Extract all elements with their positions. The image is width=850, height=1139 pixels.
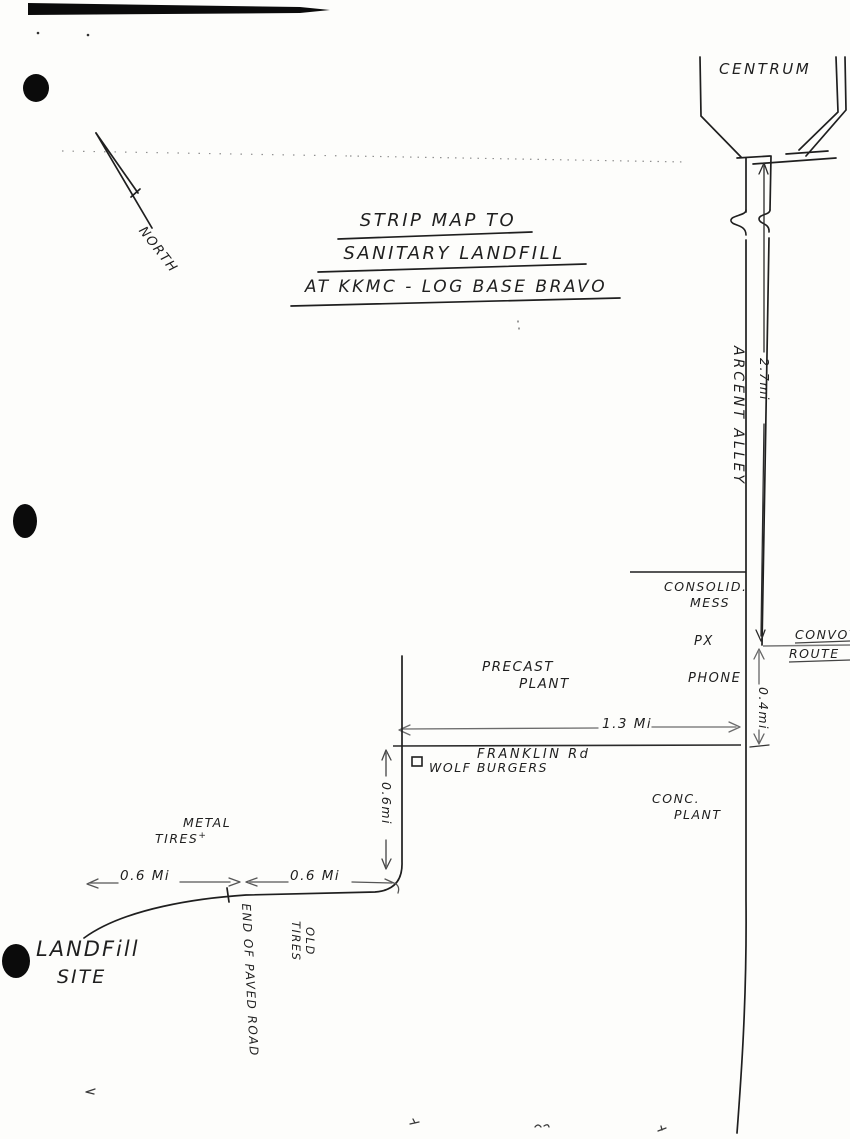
precast-plant-label: PRECAST PLANT: [482, 659, 570, 693]
arcent-alley-road: [737, 156, 771, 1133]
map-title-line1: STRIP MAP TO: [340, 210, 536, 233]
metal-tires-line2: TIRES+: [155, 831, 231, 847]
scan-band-artifact: [28, 3, 330, 36]
convoy-route-label-line1: CONVOY: [795, 627, 850, 643]
hole-punch-marks: [2, 74, 49, 978]
cross-mark: +: [198, 831, 207, 841]
px-label: PX: [694, 634, 714, 650]
landfill-site-label-line2: SITE: [57, 966, 106, 990]
scanned-strip-map-page: STRIP MAP TO SANITARY LANDFILL AT KKMC -…: [0, 0, 850, 1139]
connector-distance-label: 0.6mi: [378, 782, 394, 825]
consolid-mess-line1: CONSOLID.: [664, 579, 747, 595]
conc-plant-line2: PLANT: [674, 807, 722, 823]
map-title-line2: SANITARY LANDFILL: [324, 243, 584, 266]
landfill-site-label-line1: LANDFill: [36, 936, 140, 962]
west-distance-label-1: 0.6 Mi: [120, 868, 170, 885]
old-tires-label: OLD TIRES: [288, 921, 317, 961]
conc-plant-label: CONC. PLANT: [652, 791, 722, 822]
px-franklin-distance-label: 0.4mi: [755, 687, 771, 730]
wolf-burgers-marker: [412, 757, 422, 766]
consolid-mess-line2: MESS: [690, 595, 747, 611]
centrum-label: CENTRUM: [719, 60, 811, 79]
arcent-distance-label: 2.7mi: [756, 358, 772, 401]
franklin-road: [393, 745, 741, 746]
metal-tires-line2-text: TIRES: [155, 831, 198, 846]
map-title-line3: AT KKMC - LOG BASE BRAVO: [296, 277, 616, 298]
north-arrow-icon: [96, 133, 152, 228]
metal-tires-label: METAL TIRES+: [155, 815, 231, 846]
map-linework: [0, 0, 850, 1139]
old-tires-line1: OLD: [303, 927, 317, 961]
precast-plant-line1: PRECAST: [482, 659, 570, 676]
wolf-burgers-label: WOLF BURGERS: [429, 760, 548, 776]
metal-tires-line1: METAL: [183, 815, 231, 831]
consolid-mess-label: CONSOLID. MESS: [664, 579, 747, 610]
precast-plant-line2: PLANT: [519, 676, 570, 693]
phone-label: PHONE: [688, 671, 741, 687]
west-distance-label-2: 0.6 Mi: [290, 868, 340, 885]
scan-specks: [86, 321, 666, 1131]
franklin-distance-label: 1.3 Mi: [602, 716, 652, 733]
connector-road: [84, 656, 402, 938]
dotted-scan-line: [62, 151, 685, 162]
convoy-route-label-line2: ROUTE: [789, 646, 840, 662]
conc-plant-line1: CONC.: [652, 791, 722, 807]
arcent-alley-label: ARCENT ALLEY: [729, 346, 747, 486]
old-tires-line2: TIRES: [288, 921, 302, 961]
franklin-distance-measure: [399, 722, 740, 735]
